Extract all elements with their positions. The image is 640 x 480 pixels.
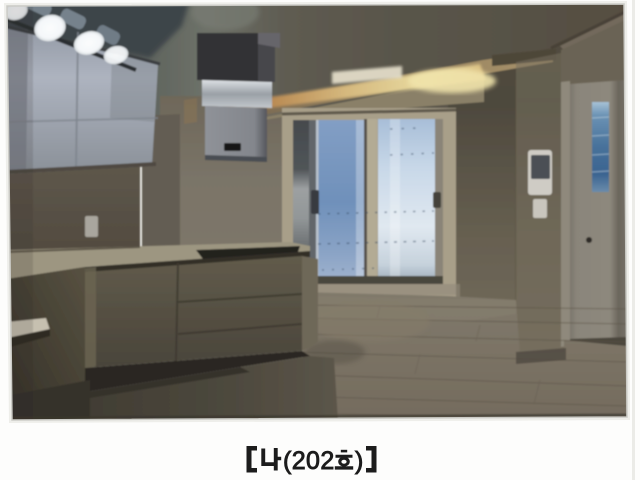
svg-text:): ) (355, 447, 363, 475)
svg-text:(202: (202 (283, 447, 335, 475)
